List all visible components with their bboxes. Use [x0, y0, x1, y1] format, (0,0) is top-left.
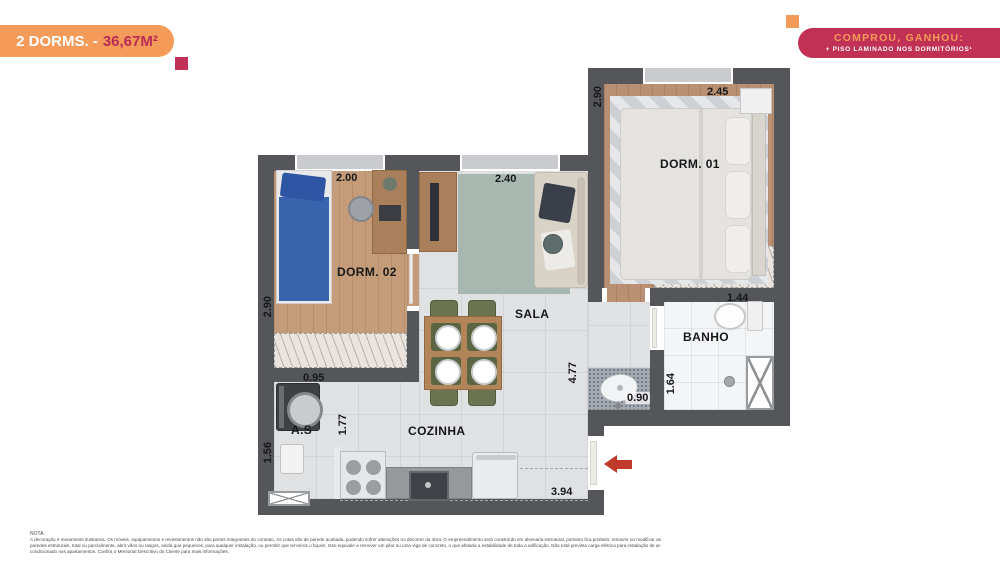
- toilet-tank: [747, 301, 763, 331]
- single-bed-blanket: [279, 197, 329, 301]
- dorm02-door-leaf: [409, 254, 413, 304]
- sofa-throw-pillow: [538, 182, 576, 223]
- washer-controls: [279, 386, 284, 428]
- basin-drain: [617, 384, 624, 391]
- dim-cozinha-width: 3.94: [551, 486, 572, 498]
- wall-dorm02-sala-lower: [407, 308, 419, 382]
- stove: [340, 451, 386, 499]
- dim-banho-width: 1.44: [727, 292, 748, 304]
- wall-dorm01-banho: [648, 288, 774, 302]
- banho-label: BANHO: [683, 330, 729, 344]
- plate-4: [471, 359, 497, 385]
- tv-stand: [419, 172, 457, 252]
- burner-1: [346, 460, 361, 475]
- unit-type-badge: 2 DORMS. - 36,67M²: [0, 25, 174, 57]
- burner-2: [366, 460, 381, 475]
- dorm02-label: DORM. 02: [337, 265, 397, 279]
- pillow-3: [725, 225, 751, 273]
- dim-dorm01-width: 2.45: [707, 86, 728, 98]
- entry-door-leaf: [590, 441, 597, 485]
- dim-lavabo-width: 0.90: [625, 392, 650, 404]
- promo-subtitle: + PISO LAMINADO NOS DORMITÓRIOS¹: [826, 46, 973, 53]
- side-table: [543, 234, 563, 254]
- headboard: [752, 112, 766, 276]
- as-label: A.S: [291, 423, 312, 437]
- wall-entry-upper: [588, 426, 604, 436]
- dim-sala-height: 4.77: [567, 362, 579, 383]
- unit-area-label: 36,67M²: [103, 33, 158, 50]
- dorm02-window: [295, 153, 385, 171]
- wall-right: [774, 68, 790, 426]
- dorm01-door-jamb-right: [645, 288, 650, 302]
- shower-box: [746, 356, 774, 410]
- magenta-accent-square: [175, 57, 188, 70]
- kitchen-counter: [386, 467, 472, 499]
- nightstand: [740, 88, 772, 114]
- desk-plant: [383, 177, 397, 191]
- shower-drain: [724, 376, 735, 387]
- note-body: A decoração é meramente ilustrativa. Os …: [30, 537, 662, 556]
- dim-dorm01-height: 2.90: [592, 86, 604, 107]
- wall-banho-bottom: [588, 410, 790, 426]
- dim-banho-height: 1.64: [665, 373, 677, 394]
- sala-label: SALA: [515, 307, 549, 321]
- wall-dorm02-as: [274, 368, 407, 382]
- fridge: [472, 452, 518, 499]
- promo-title: COMPROU, GANHOU:: [834, 33, 964, 44]
- dining-table: [424, 316, 502, 390]
- laundry-tank: [280, 444, 304, 474]
- dorm01-door-jamb-left: [602, 288, 607, 302]
- promo-banner: COMPROU, GANHOU: + PISO LAMINADO NOS DOR…: [798, 28, 1000, 58]
- dorm01-window: [643, 66, 733, 84]
- sofa: [534, 172, 588, 288]
- dim-as-width: 0.95: [303, 372, 324, 384]
- plate-3: [435, 359, 461, 385]
- placemat-1: [431, 323, 461, 351]
- burner-3: [346, 480, 361, 495]
- sala-window: [460, 153, 560, 171]
- dim-dorm02-width: 2.00: [336, 172, 357, 184]
- placemat-2: [467, 323, 497, 351]
- dorm02-door-jamb-bottom: [407, 306, 419, 311]
- entry-door-jamb-bottom: [588, 485, 604, 490]
- laptop: [379, 205, 401, 221]
- double-bed-blanket-fold: [699, 109, 703, 279]
- dim-cozinha-depth: 1.77: [337, 414, 349, 435]
- sofa-backrest: [577, 177, 585, 285]
- tv: [430, 183, 439, 241]
- dim-sala-width: 2.40: [495, 173, 516, 185]
- dorm01-label: DORM. 01: [660, 157, 720, 171]
- wall-entry-lower: [588, 490, 604, 515]
- plate-1: [435, 325, 461, 351]
- dim-dorm02-height: 2.90: [262, 296, 274, 317]
- desk: [372, 170, 407, 254]
- desk-chair: [348, 196, 374, 222]
- dorm01-door-floor: [604, 288, 648, 302]
- entrance-arrow-icon: [604, 455, 632, 473]
- cozinha-label: COZINHA: [408, 424, 465, 438]
- single-bed-pillow: [280, 172, 327, 201]
- orange-accent-square: [786, 15, 799, 28]
- single-bed: [276, 170, 332, 304]
- floorplan-page: 2 DORMS. - 36,67M² COMPROU, GANHOU: + PI…: [0, 0, 1000, 562]
- as-window-box: [268, 491, 310, 506]
- kitchen-sink: [409, 471, 449, 501]
- fridge-handle: [476, 455, 516, 460]
- dorm02-closet-area: [274, 333, 407, 368]
- wall-dorm02-sala-upper: [407, 171, 419, 253]
- placemat-3: [431, 357, 461, 385]
- plate-2: [471, 325, 497, 351]
- pillow-2: [725, 171, 751, 219]
- hall-floor: [588, 302, 650, 368]
- placemat-4: [467, 357, 497, 385]
- burner-4: [366, 480, 381, 495]
- sink-drain: [425, 482, 431, 488]
- double-bed: [620, 108, 752, 280]
- pillow-1: [725, 117, 751, 165]
- basin-faucet: [615, 403, 621, 409]
- unit-type-label: 2 DORMS. -: [16, 33, 98, 50]
- dim-as-height: 1.56: [262, 442, 274, 463]
- arrow-head: [604, 455, 617, 473]
- toilet-bowl: [714, 303, 746, 330]
- arrow-shaft: [617, 460, 632, 469]
- banho-door-leaf: [652, 308, 657, 348]
